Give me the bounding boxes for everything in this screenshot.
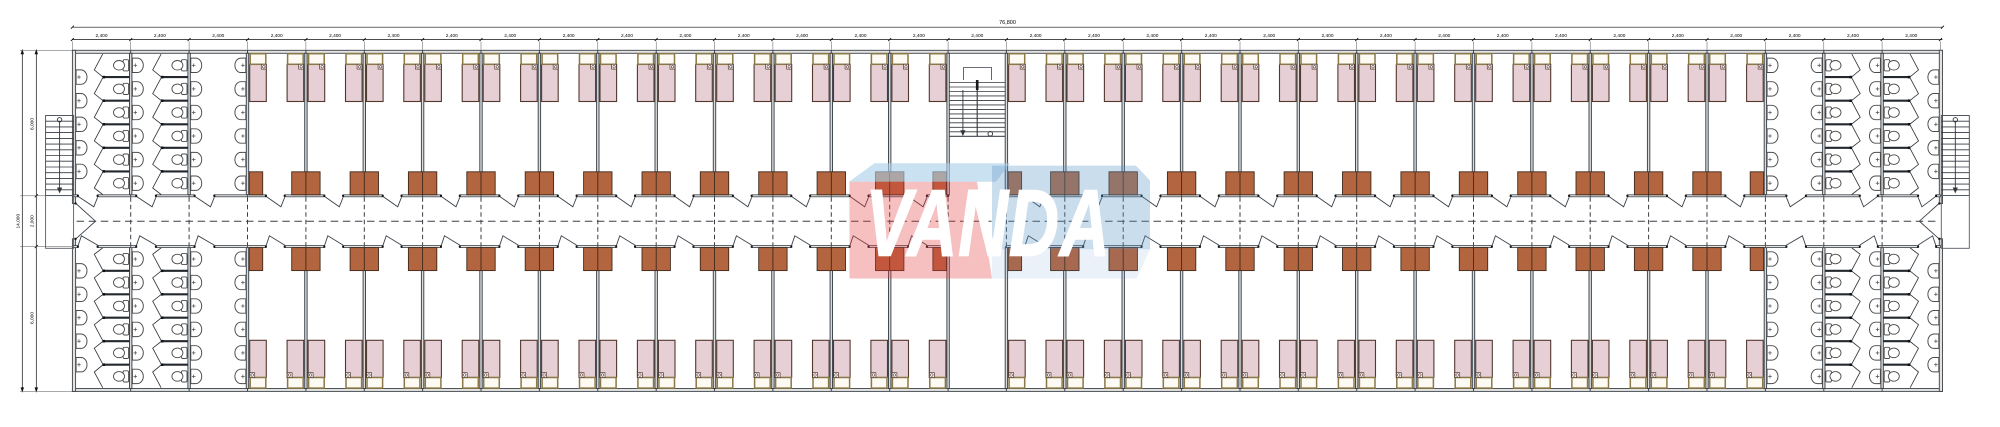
svg-text:2,000: 2,000: [29, 215, 35, 227]
svg-text:76,800: 76,800: [999, 20, 1016, 26]
svg-text:VANDA: VANDA: [865, 170, 1110, 276]
svg-text:2,400: 2,400: [1497, 33, 1509, 39]
svg-text:14,000: 14,000: [15, 214, 21, 229]
svg-text:2,400: 2,400: [1789, 33, 1801, 39]
svg-text:2,400: 2,400: [387, 33, 399, 39]
svg-text:2,400: 2,400: [1438, 33, 1450, 39]
svg-text:2,400: 2,400: [1030, 33, 1042, 39]
svg-text:2,400: 2,400: [1555, 33, 1567, 39]
svg-text:2,400: 2,400: [913, 33, 925, 39]
svg-text:2,400: 2,400: [1205, 33, 1217, 39]
svg-text:2,400: 2,400: [1321, 33, 1333, 39]
svg-text:2,400: 2,400: [679, 33, 691, 39]
svg-text:2,400: 2,400: [504, 33, 516, 39]
svg-text:2,400: 2,400: [563, 33, 575, 39]
svg-text:2,400: 2,400: [1730, 33, 1742, 39]
svg-text:2,400: 2,400: [971, 33, 983, 39]
svg-text:2,400: 2,400: [1088, 33, 1100, 39]
svg-text:2,400: 2,400: [796, 33, 808, 39]
svg-text:2,400: 2,400: [738, 33, 750, 39]
svg-text:2,400: 2,400: [271, 33, 283, 39]
svg-text:2,400: 2,400: [446, 33, 458, 39]
svg-text:2,400: 2,400: [854, 33, 866, 39]
svg-text:2,400: 2,400: [1146, 33, 1158, 39]
svg-text:2,400: 2,400: [1847, 33, 1859, 39]
svg-text:6,000: 6,000: [29, 312, 35, 324]
svg-text:2,400: 2,400: [95, 33, 107, 39]
svg-text:2,400: 2,400: [1672, 33, 1684, 39]
svg-text:2,400: 2,400: [212, 33, 224, 39]
svg-text:2,400: 2,400: [1380, 33, 1392, 39]
svg-text:2,400: 2,400: [1613, 33, 1625, 39]
svg-text:2,400: 2,400: [1905, 33, 1917, 39]
svg-text:2,400: 2,400: [621, 33, 633, 39]
svg-text:2,400: 2,400: [329, 33, 341, 39]
svg-text:2,400: 2,400: [154, 33, 166, 39]
svg-text:6,000: 6,000: [29, 118, 35, 130]
svg-text:2,400: 2,400: [1263, 33, 1275, 39]
